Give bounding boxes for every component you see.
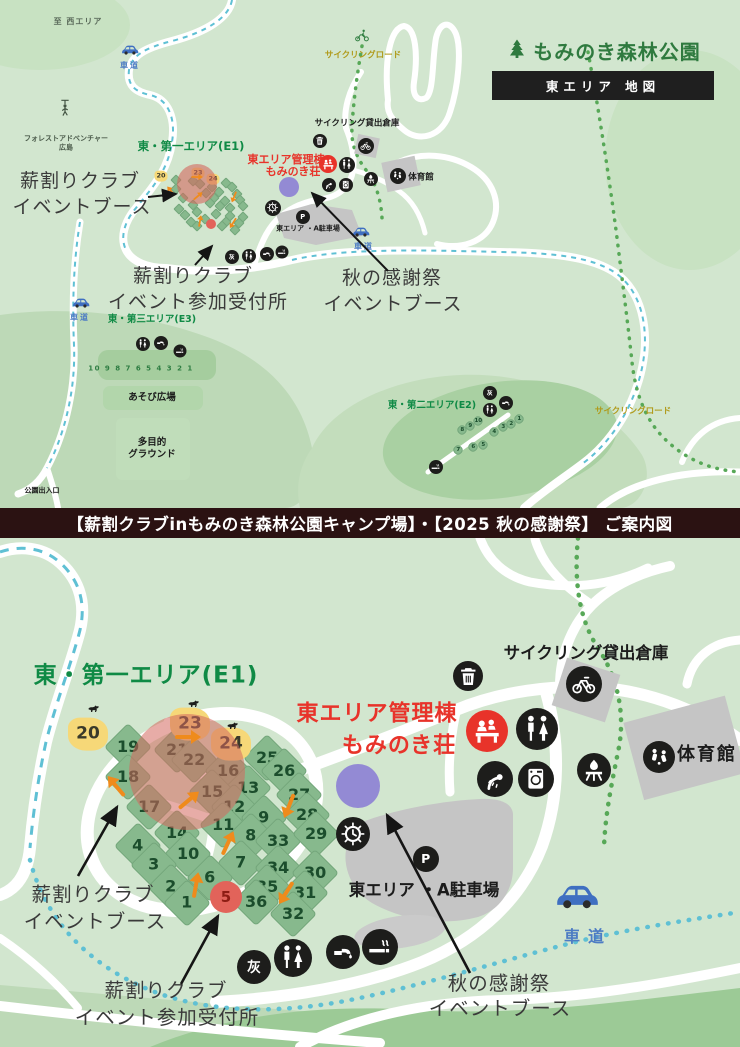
park-guide-poster: 89104321765202324P灰灰至 西エリア車道車道車道サイクリングロー… <box>0 0 740 1047</box>
site-20: 20 <box>155 171 168 182</box>
area-e1-label: 東・第一エリア(E1) <box>138 139 245 153</box>
site-5: 5 <box>479 441 488 450</box>
washer-icon <box>339 178 353 192</box>
parking-a-label: 東エリア ・A駐車場 <box>276 225 340 234</box>
svg-text:P: P <box>301 213 306 221</box>
washer-icon <box>518 761 554 797</box>
smoking-icon <box>429 460 443 474</box>
gym-icon <box>643 741 675 773</box>
caption-banner: 【薪割クラブinもみのき森林公園キャンプ場】・【2025 秋の感謝祭】 ご案内図 <box>0 508 740 538</box>
management-building-label: 東エリア管理棟 <box>296 700 457 728</box>
mominoki-lodge-label: もみのき荘 <box>342 732 456 760</box>
site-10: 10 <box>474 417 483 426</box>
route-arrow <box>175 730 201 744</box>
site-1: 1 <box>515 415 524 424</box>
site-29: 29 <box>299 817 333 851</box>
svg-text:灰: 灰 <box>229 253 235 261</box>
autumn-festival-booth-label: イベントブース <box>323 293 462 317</box>
cycle-rental-label: サイクリング貸出倉庫 <box>504 644 669 665</box>
ash-icon: 灰 <box>483 386 497 400</box>
dog-icon <box>86 701 102 722</box>
svg-text:灰: 灰 <box>247 959 261 976</box>
to-west-area-label: 至 西エリア <box>54 17 103 27</box>
toilet-icon <box>136 337 150 351</box>
toilet-icon <box>339 157 355 173</box>
highlight-circle <box>279 177 299 197</box>
caption-text: 【薪割クラブinもみのき森林公園キャンプ場】・【2025 秋の感謝祭】 ご案内図 <box>67 511 672 535</box>
park-entrance-label: 公園出入口 <box>25 487 60 496</box>
e3-site-numbers: 10 9 8 7 6 5 4 3 2 1 <box>88 365 194 374</box>
toilet-icon <box>483 403 497 417</box>
bicycle-icon <box>566 666 602 702</box>
site-20: 20 <box>68 718 108 751</box>
ash-icon: 灰 <box>237 950 271 984</box>
mominoki-lodge-label: もみのき荘 <box>266 165 321 179</box>
detail-map-markers: 1921221817252616131512271192814833294107… <box>0 538 740 1047</box>
wood-split-reception-label: イベント参加受付所 <box>75 1006 260 1030</box>
site-36: 36 <box>239 885 273 919</box>
park-name: もみのき森林公園 <box>533 36 700 65</box>
route-arrow <box>196 215 204 228</box>
multipurpose-ground-label: 多目的 グラウンド <box>128 437 176 461</box>
adventure-icon <box>54 99 76 126</box>
faucet-icon <box>326 935 360 969</box>
svg-text:P: P <box>421 851 430 866</box>
play-plaza-label: あそび広場 <box>128 392 176 404</box>
site-marker <box>212 210 220 218</box>
east-area-overview-map: 89104321765202324P灰灰至 西エリア車道車道車道サイクリングロー… <box>0 0 740 508</box>
bicycle-icon <box>358 138 374 154</box>
clock-icon <box>336 817 370 851</box>
gymnasium-label: 体育館 <box>408 173 434 184</box>
park-logo: もみのき森林公園 東エリア 地図 <box>492 36 714 100</box>
site-6: 6 <box>469 443 478 452</box>
shower-icon <box>322 178 336 192</box>
smoking-icon <box>174 345 187 358</box>
wood-split-reception-label: イベント参加受付所 <box>108 291 288 315</box>
clock-icon <box>265 200 281 216</box>
roadway-label: 車道 <box>354 242 374 252</box>
parking-icon: P <box>296 210 310 224</box>
car-icon <box>552 871 602 926</box>
faucet-icon <box>499 396 513 410</box>
tree-icon <box>505 37 529 65</box>
gymnasium-label: 体育館 <box>677 744 737 767</box>
site-marker <box>218 222 226 230</box>
cycling-road-label: サイクリングロード <box>325 51 401 62</box>
highlight-circle <box>336 764 380 808</box>
toilet-icon <box>274 939 312 977</box>
faucet-icon <box>260 247 274 261</box>
map-area-subtitle: 東エリア 地図 <box>492 71 714 100</box>
wood-split-reception-label: 薪割りクラブ <box>104 979 227 1003</box>
parking-a-label: 東エリア ・A駐車場 <box>349 881 500 902</box>
reception-icon <box>466 710 508 752</box>
toilet-icon <box>516 708 558 750</box>
cycling-road-label: サイクリングロード <box>595 407 671 418</box>
roadway-label: 車道 <box>70 313 90 323</box>
parking-icon: P <box>413 846 439 872</box>
campfire-icon <box>577 753 611 787</box>
roadway-label: 車道 <box>564 927 612 947</box>
autumn-festival-booth-label: イベントブース <box>429 997 572 1021</box>
campfire-icon <box>364 172 378 186</box>
wood-split-booth-label: 薪割りクラブ <box>20 170 140 194</box>
roadway-label: 車道 <box>120 61 140 71</box>
autumn-festival-booth-label: 秋の感謝祭 <box>342 267 442 291</box>
faucet-icon <box>154 336 168 350</box>
ash-icon: 灰 <box>225 250 239 264</box>
wood-split-booth-label: イベントブース <box>12 196 151 220</box>
wood-split-reception-label: 薪割りクラブ <box>133 265 253 289</box>
wood-split-booth-label: イベントブース <box>24 910 167 934</box>
smoking-icon <box>276 246 289 259</box>
e1-area-detail-map: 1921221817252616131512271192814833294107… <box>0 538 740 1047</box>
wood-split-booth-label: 薪割りクラブ <box>31 883 154 907</box>
area-e3-label: 東・第三エリア(E3) <box>108 314 196 326</box>
trash-icon <box>453 661 483 691</box>
site-5: 5 <box>210 881 242 913</box>
shower-icon <box>477 761 513 797</box>
gym-icon <box>390 168 406 184</box>
svg-text:灰: 灰 <box>487 389 493 397</box>
smoking-icon <box>362 929 398 965</box>
route-arrow <box>191 174 203 180</box>
highlight-circle <box>206 219 216 229</box>
autumn-festival-booth-label: 秋の感謝祭 <box>448 972 551 996</box>
site-4: 4 <box>490 428 499 437</box>
cyclist-icon <box>354 28 370 49</box>
site-marker <box>239 202 247 210</box>
forest-adventure-label: フォレストアドベンチャー 広島 <box>24 134 108 152</box>
site-7: 7 <box>454 446 463 455</box>
trash-icon <box>313 134 327 148</box>
area-e2-label: 東・第二エリア(E2) <box>388 400 476 412</box>
area-e1-title: 東・第一エリア(E1) <box>34 662 259 691</box>
cycle-rental-label: サイクリング貸出倉庫 <box>315 119 400 130</box>
toilet-icon <box>242 249 256 263</box>
